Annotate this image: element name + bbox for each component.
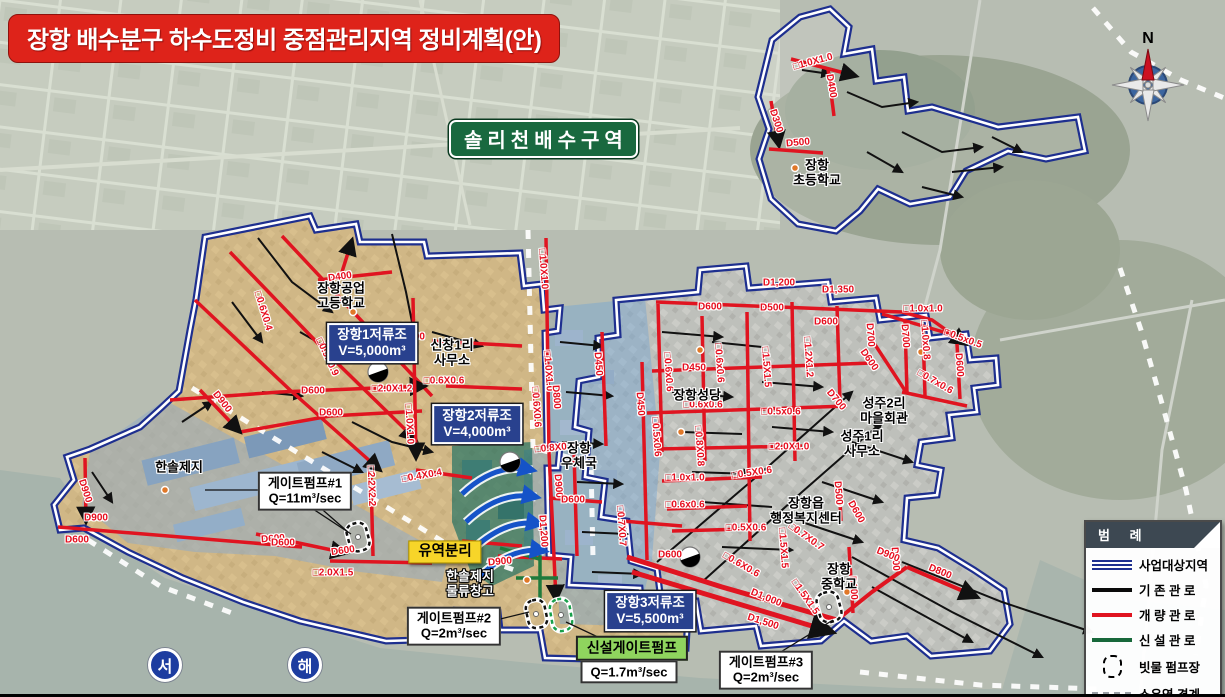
pipe-size-label: D900 — [488, 555, 513, 568]
gate-pump-2-label: 게이트펌프#2Q=2m³/sec — [407, 607, 501, 646]
legend-item-label: 신 설 관 로 — [1139, 630, 1195, 649]
pipe-size-label: D700 — [824, 387, 848, 412]
pipe-size-label: D600 — [858, 347, 881, 373]
legend: 범 례 사업대상지역기 존 관 로개 량 관 로신 설 관 로빗물 펌프장소유역… — [1084, 520, 1222, 697]
pipe-size-label: D1,500 — [746, 612, 780, 632]
place-label: 한솔제지 — [155, 461, 203, 476]
pipe-size-label: D1,200 — [536, 515, 549, 548]
legend-item-label: 사업대상지역 — [1139, 555, 1208, 574]
double-blue-line-icon — [1092, 560, 1132, 570]
pipe-size-label: D600 — [271, 538, 295, 549]
place-label: 장항우체국 — [561, 441, 597, 470]
place-label: 장항초등학교 — [793, 158, 841, 187]
pipe-size-label: D400 — [824, 73, 839, 98]
legend-item-label: 기 존 관 로 — [1139, 580, 1195, 599]
legend-item-label: 빗물 펌프장 — [1139, 657, 1200, 676]
place-label: 성주2리마을회관 — [860, 396, 908, 425]
legend-item: 빗물 펌프장 — [1086, 652, 1220, 681]
red-line-icon — [1092, 613, 1132, 617]
pipe-size-label: □0.5X0.6 — [726, 523, 767, 534]
pipe-size-label: D300 — [767, 108, 785, 134]
reservoir-2-label: 장항2저류조V=4,000m³ — [432, 404, 522, 444]
pipe-size-label: D700 — [864, 323, 877, 348]
black-line-icon — [1092, 588, 1132, 592]
pipe-size-label: D1,000 — [749, 587, 783, 609]
pipe-size-label: □0.6X0.6 — [721, 550, 762, 580]
basin-separation-label: 유역분리 — [408, 540, 481, 563]
pipe-size-label: □0.7x0.6 — [915, 367, 955, 396]
pipe-size-label: □0.6X0.6 — [424, 376, 465, 387]
pipe-size-label: □1.0X1.0 — [402, 403, 415, 444]
drainage-region-label: 솔리천배수구역 — [449, 120, 638, 158]
pipe-size-label: D500 — [786, 136, 811, 149]
pipe-size-label: D1,200 — [763, 278, 795, 289]
pipe-size-label: D600 — [301, 386, 325, 397]
pipe-size-label: □0.6x0.6 — [665, 500, 704, 511]
pipe-size-label: D1,350 — [822, 285, 854, 296]
pipe-size-label: D700 — [899, 324, 912, 349]
sea-name-label: 해 — [288, 648, 322, 682]
place-label: 장항읍행정복지센터 — [770, 496, 842, 525]
pipe-size-label: D600 — [953, 353, 966, 378]
pipe-size-label: D600 — [698, 302, 722, 313]
pipe-size-label: □0.7X0.7 — [614, 505, 628, 546]
legend-title: 범 례 — [1086, 522, 1220, 548]
pipe-size-label: D900 — [76, 478, 94, 504]
pipe-size-label: □1.0X1.0 — [536, 248, 550, 289]
pipe-size-label: □0.7X0.7 — [786, 521, 825, 553]
pipe-size-label: D600 — [845, 499, 866, 525]
pipe-size-label: □0.6X0.4 — [252, 290, 274, 332]
pipe-size-label: D600 — [658, 550, 682, 561]
legend-item-label: 개 량 관 로 — [1139, 605, 1195, 624]
green-line-icon — [1092, 638, 1132, 642]
pipe-size-label: D600 — [65, 535, 89, 546]
place-label: 한솔제지물류창고 — [446, 569, 494, 598]
place-label: 성주1리사무소 — [840, 429, 883, 458]
sewerage-plan-map: N D400□0.6X0.4□0.9X0.9D600D600□2.0X1.2D6… — [0, 0, 1225, 697]
pipe-size-label: D450 — [682, 363, 706, 374]
legend-item: 신 설 관 로 — [1086, 627, 1220, 652]
pipe-size-label: D450 — [592, 352, 605, 377]
gate-pump-3-label: 게이트펌프#3Q=2m³/sec — [719, 651, 813, 690]
place-label: 장항성당 — [673, 389, 721, 404]
pipe-size-label: D900 — [84, 513, 108, 524]
pipe-size-label: □2.0X1.5 — [313, 568, 354, 579]
legend-item: 기 존 관 로 — [1086, 577, 1220, 602]
pipe-size-label: D500 — [760, 303, 784, 314]
pipe-size-label: D900 — [210, 389, 233, 415]
pipe-size-label: □1.5X1.5 — [776, 527, 790, 568]
pipe-size-label: D600 — [814, 317, 838, 328]
pipe-size-label: □0.5X0.6 — [731, 465, 773, 482]
pipe-size-label: □0.6X0.6 — [529, 386, 543, 427]
new-gate-pump-label: 신설게이트펌프 — [576, 636, 688, 661]
pipe-size-label: D450 — [634, 392, 647, 417]
pipe-size-label: □0.4X0.4 — [401, 467, 443, 485]
pipe-size-label: □0.6x0.6 — [712, 343, 726, 383]
pipe-size-label: □1.0x1.0 — [903, 304, 942, 315]
annotation-layer: D400□0.6X0.4□0.9X0.9D600D600□2.0X1.2D600… — [0, 0, 1225, 697]
pipe-size-label: D600 — [330, 544, 355, 558]
pipe-size-label: □1.5X1.5 — [789, 577, 821, 616]
new-gate-pump-q-label: Q=1.7m³/sec — [581, 660, 678, 683]
pipe-size-label: □0.5x0.5 — [943, 327, 984, 351]
reservoir-1-label: 장항1저류조V=5,000m³ — [327, 323, 417, 363]
pipe-size-label: D600 — [319, 408, 343, 419]
map-title: 장항 배수분구 하수도정비 중점관리지역 정비계획(안) — [8, 14, 560, 63]
reservoir-3-label: 장항3저류조V=5,500m³ — [605, 591, 695, 631]
legend-items: 사업대상지역기 존 관 로개 량 관 로신 설 관 로빗물 펌프장소유역 경계 — [1086, 552, 1220, 697]
pipe-size-label: □1.0x1.0 — [665, 473, 704, 484]
pipe-size-label: □2.0X1.0 — [769, 442, 810, 453]
dashed-ellipse-icon — [1092, 655, 1132, 678]
legend-item: 사업대상지역 — [1086, 552, 1220, 577]
pipe-size-label: □1.0X1.0 — [792, 51, 834, 72]
place-label: 장항공업고등학교 — [317, 281, 365, 310]
pipe-size-label: D800 — [927, 562, 953, 581]
pipe-size-label: □1.2X1.2 — [801, 336, 815, 377]
pipe-size-label: □2.2X2.2 — [365, 466, 377, 507]
place-label: 신창1리사무소 — [430, 338, 473, 367]
pipe-size-label: □0.6x0.6 — [661, 352, 675, 392]
pipe-size-label: D800 — [550, 385, 563, 410]
place-label: 장항중학교 — [821, 562, 857, 591]
gate-pump-1-label: 게이트펌프#1Q=11m³/sec — [258, 472, 352, 511]
pipe-size-label: □0.8X0.8 — [692, 425, 706, 466]
pipe-size-label: □1.0x0.8 — [918, 320, 932, 360]
pipe-size-label: D600 — [561, 495, 585, 506]
pipe-size-label: □1.5X1.5 — [759, 346, 773, 387]
pipe-size-label: □0.5x0.6 — [649, 417, 663, 457]
legend-item: 개 량 관 로 — [1086, 602, 1220, 627]
pipe-size-label: □0.5x0.6 — [761, 407, 800, 418]
pipe-size-label: □2.0X1.2 — [372, 384, 413, 395]
sea-name-label: 서 — [148, 648, 182, 682]
